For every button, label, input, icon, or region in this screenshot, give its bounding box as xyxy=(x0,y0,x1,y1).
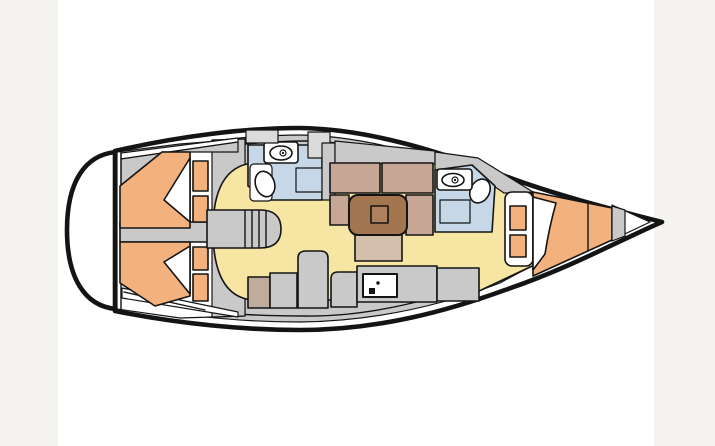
settee-arm-left xyxy=(330,195,349,225)
page-background xyxy=(0,0,715,446)
settee-back-cushion-right xyxy=(382,163,433,193)
stove xyxy=(363,274,397,297)
aft-top-shelf-1 xyxy=(193,161,208,191)
vberth-step-1 xyxy=(510,206,526,230)
settee-bench xyxy=(355,234,402,261)
galley-counter-tan xyxy=(248,277,270,308)
shower-tray-forward xyxy=(440,200,470,223)
dinette-table-inlay xyxy=(371,206,388,223)
deck-hatch-1 xyxy=(246,130,278,143)
galley-counter-tall xyxy=(298,251,328,308)
toilet-forward-bowl xyxy=(442,174,464,187)
aft-top-shelf-2 xyxy=(193,196,208,222)
bow-shelf xyxy=(612,206,625,241)
shower-tray-amidships xyxy=(296,168,322,192)
companionway-steps xyxy=(207,210,281,248)
aft-bottom-shelf-1 xyxy=(193,247,208,270)
settee-arm-right xyxy=(406,195,433,235)
galley-counter-1 xyxy=(270,273,297,308)
galley-counter-2 xyxy=(331,272,357,307)
companionway-steps-body xyxy=(207,210,281,248)
toilet-forward-dot xyxy=(454,179,456,181)
vberth-step-2 xyxy=(510,235,526,257)
left-margin-bar xyxy=(0,0,58,446)
toilet-amidships-dot xyxy=(282,152,284,154)
aft-bottom-shelf-2 xyxy=(193,274,208,301)
settee-back-cushion-left xyxy=(330,163,380,193)
galley-counter-3 xyxy=(437,268,479,301)
toilet-amidships-bowl xyxy=(270,146,292,160)
stove-icon-dot xyxy=(376,281,379,284)
boat-floor-plan xyxy=(0,0,715,446)
stove-icon-burner xyxy=(369,288,375,294)
